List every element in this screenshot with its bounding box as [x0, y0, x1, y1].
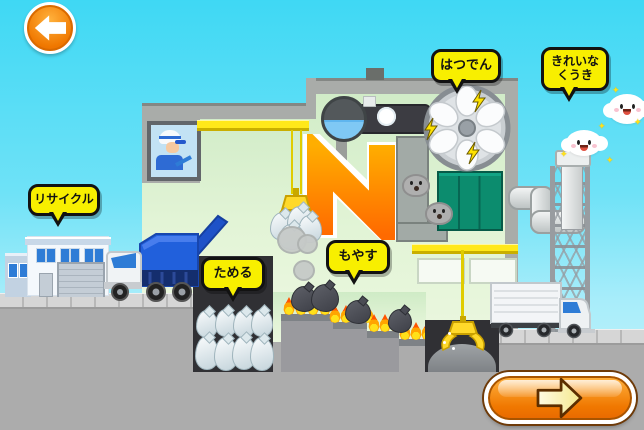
dust-speck [452, 347, 455, 350]
cloud-character [566, 130, 602, 156]
smoke-character [402, 174, 430, 197]
speech-bubble-recycle: リサイクル [28, 184, 100, 216]
speech-bubble-power: はつでん [431, 49, 501, 83]
dust-speck [448, 332, 451, 335]
roof-step [306, 78, 316, 119]
next-button[interactable] [484, 372, 636, 424]
step-ledge [281, 314, 333, 321]
back-button[interactable] [24, 2, 76, 54]
generator-fan [423, 84, 511, 172]
helmet-stripe [159, 136, 181, 139]
smoke-character [425, 202, 453, 225]
chimney-pipe [561, 160, 583, 230]
speech-bubble-clean-air: きれいな くうき [541, 47, 609, 91]
bubble-label: リサイクル [34, 193, 93, 207]
step-ledge [367, 331, 399, 338]
smoke-puff [297, 234, 318, 254]
bubble-label: ためる [213, 267, 252, 282]
speech-bubble-store: ためる [201, 257, 265, 291]
sparkle-icon: ✦ [598, 122, 606, 132]
bubble-label: きれいな くうき [551, 55, 599, 83]
hopper-door [417, 258, 465, 284]
dust-speck [443, 341, 446, 344]
burning-bag [388, 309, 412, 333]
sparkle-icon: ✦ [606, 156, 614, 166]
ash-claw [437, 316, 489, 358]
ash-claw-cable [461, 250, 464, 322]
building-roofband [25, 237, 111, 245]
crane-cable [291, 130, 293, 194]
shutter-door [57, 262, 105, 297]
sparkle-icon: ✦ [612, 86, 620, 96]
step [333, 328, 367, 372]
side-door [39, 273, 53, 297]
arrow-right-icon [533, 376, 587, 420]
sparkle-icon: ✦ [634, 118, 642, 128]
cap-brim [175, 140, 186, 144]
sparkle-icon: ✦ [560, 150, 568, 160]
arrow-left-icon [31, 12, 69, 44]
step [281, 320, 333, 372]
burning-bag [311, 284, 339, 312]
burning-bag [345, 300, 371, 324]
control-room-window [147, 121, 201, 181]
ash-truck [490, 281, 596, 339]
roof-vent [366, 68, 384, 80]
recycle-building [27, 236, 109, 296]
steam-vent [363, 96, 376, 107]
bubble-label: もやす [338, 250, 377, 265]
steam-ball [377, 107, 396, 126]
ash-crane-rail [412, 244, 518, 254]
bubble-label: はつでん [440, 59, 492, 74]
smoke-puff [293, 260, 315, 281]
game-scene: ✦ ✦ ✦ ✦ ✦ リサイクル ためる もやす はつでん きれいな くうき [0, 0, 644, 430]
factory-roof-left [142, 103, 310, 119]
speech-bubble-burn: もやす [326, 240, 390, 274]
garbage-bag [250, 337, 274, 371]
step [367, 337, 399, 372]
